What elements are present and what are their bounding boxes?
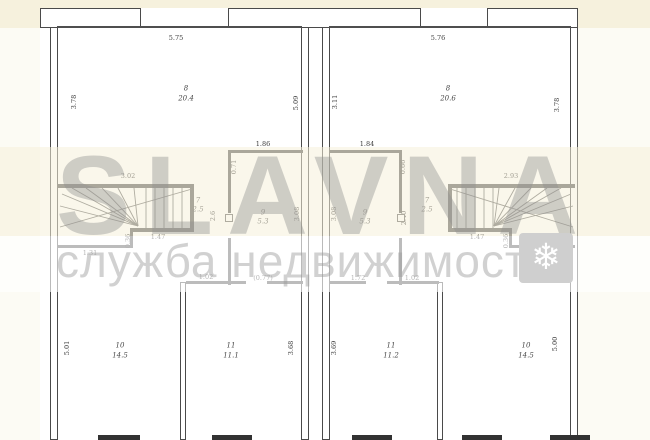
window-mark: [462, 435, 502, 440]
dimension-label: 3.78: [554, 98, 561, 112]
window-mark: [352, 435, 392, 440]
room-number-label: 10: [116, 343, 125, 350]
room-area-label: 11.2: [383, 353, 399, 360]
floor-plan: 5.753.785.09820.43.021.860.7172.52.695.3…: [0, 0, 650, 440]
dimension-label: 3.78: [71, 95, 78, 109]
wall-top-pier-left: [40, 8, 141, 28]
dimension-label: 5.75: [169, 35, 183, 42]
watermark-tagline-text: служба недвижимости: [56, 237, 554, 285]
dimension-label: 3.68: [288, 341, 295, 355]
dimension-label: 3.11: [332, 95, 339, 109]
dimension-label: 5.09: [293, 96, 300, 110]
wall-top-pier-right: [487, 8, 578, 28]
wall-divider-right-unit: [437, 282, 443, 440]
room-number-label: 11: [387, 343, 396, 350]
dimension-label: 5.00: [552, 337, 559, 351]
wall-top-pier-center: [228, 8, 421, 28]
room-number-label: 8: [184, 86, 188, 93]
room-number-label: 8: [446, 86, 450, 93]
room-area-label: 14.5: [518, 353, 534, 360]
snowflake-logo-box: ❄: [519, 233, 573, 283]
room-area-label: 20.6: [440, 96, 456, 103]
wall-divider-left-unit: [180, 282, 186, 440]
room-number-label: 10: [522, 343, 531, 350]
window-mark: [550, 435, 590, 440]
wall-room8-top-left: [57, 26, 302, 28]
room-area-label: 14.5: [112, 353, 128, 360]
dimension-label: 3.69: [331, 341, 338, 355]
room-area-label: 20.4: [178, 96, 194, 103]
room-number-label: 11: [227, 343, 236, 350]
dimension-label: 5.01: [64, 341, 71, 355]
window-mark: [98, 435, 140, 440]
window-mark: [212, 435, 252, 440]
room-area-label: 11.1: [223, 353, 239, 360]
wall-room8-top-right: [329, 26, 571, 28]
snowflake-icon: ❄: [531, 240, 561, 276]
dimension-label: 5.76: [431, 35, 445, 42]
